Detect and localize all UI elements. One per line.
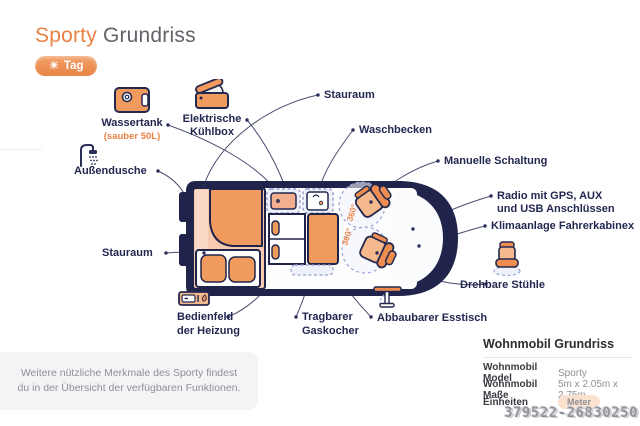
callout-drehbare-stuehle: Drehbare Stühle (490, 241, 524, 292)
heater-panel-icon (178, 291, 210, 306)
callout-kuehlbox: Elektrische Kühlbox (179, 79, 245, 139)
callout-bedienfeld-line1: Bedienfeld (177, 311, 233, 324)
callout-gaskocher-line1: Tragbarer (302, 311, 353, 324)
callout-waschbecken: Waschbecken (359, 124, 432, 137)
footer-note-line1: Weitere nützliche Merkmale des Sporty fi… (0, 366, 258, 381)
table-icon (372, 285, 404, 309)
callout-stauraum-links: Stauraum (102, 247, 153, 260)
wassertank-label: Wassertank (96, 117, 168, 130)
callout-esstisch: Abbaubarer Esstisch (377, 312, 487, 325)
footer-note-line2: du in der Übersicht der verfügbaren Funk… (0, 381, 258, 396)
specs-divider (483, 357, 633, 358)
water-tank-icon (113, 84, 151, 115)
callout-radio-line2: und USB Anschlüssen (497, 203, 615, 216)
kuehlbox-label-line2: Kühlbox (179, 126, 245, 139)
drehbare-stuehle-label: Drehbare Stühle (460, 279, 524, 292)
callout-stauraum-top: Stauraum (324, 89, 375, 102)
swivel-chair-icon (491, 241, 523, 277)
wassertank-note: (sauber 50L) (96, 131, 168, 142)
spec-value-model: Sporty (558, 368, 587, 379)
footer-note: Weitere nützliche Merkmale des Sporty fi… (0, 352, 258, 410)
kuehlbox-label-line1: Elektrische (179, 113, 245, 126)
callout-aussendusche: Außendusche (74, 165, 147, 178)
coolbox-icon (193, 79, 231, 111)
callout-wassertank: Wassertank (sauber 50L) (96, 84, 168, 142)
callout-bedienfeld-line2: der Heizung (177, 325, 240, 338)
callout-manuelle-schaltung: Manuelle Schaltung (444, 155, 547, 168)
callout-klimaanlage: Klimaanlage Fahrerkabinex (491, 220, 634, 233)
callout-gaskocher-line2: Gaskocher (302, 325, 359, 338)
page: Sporty Grundriss ☀ Tag (0, 0, 640, 426)
specs-heading: Wohnmobil Grundriss (483, 337, 614, 351)
watermark: 379522-26830250 (504, 405, 638, 421)
callout-radio-line1: Radio mit GPS, AUX (497, 190, 602, 203)
